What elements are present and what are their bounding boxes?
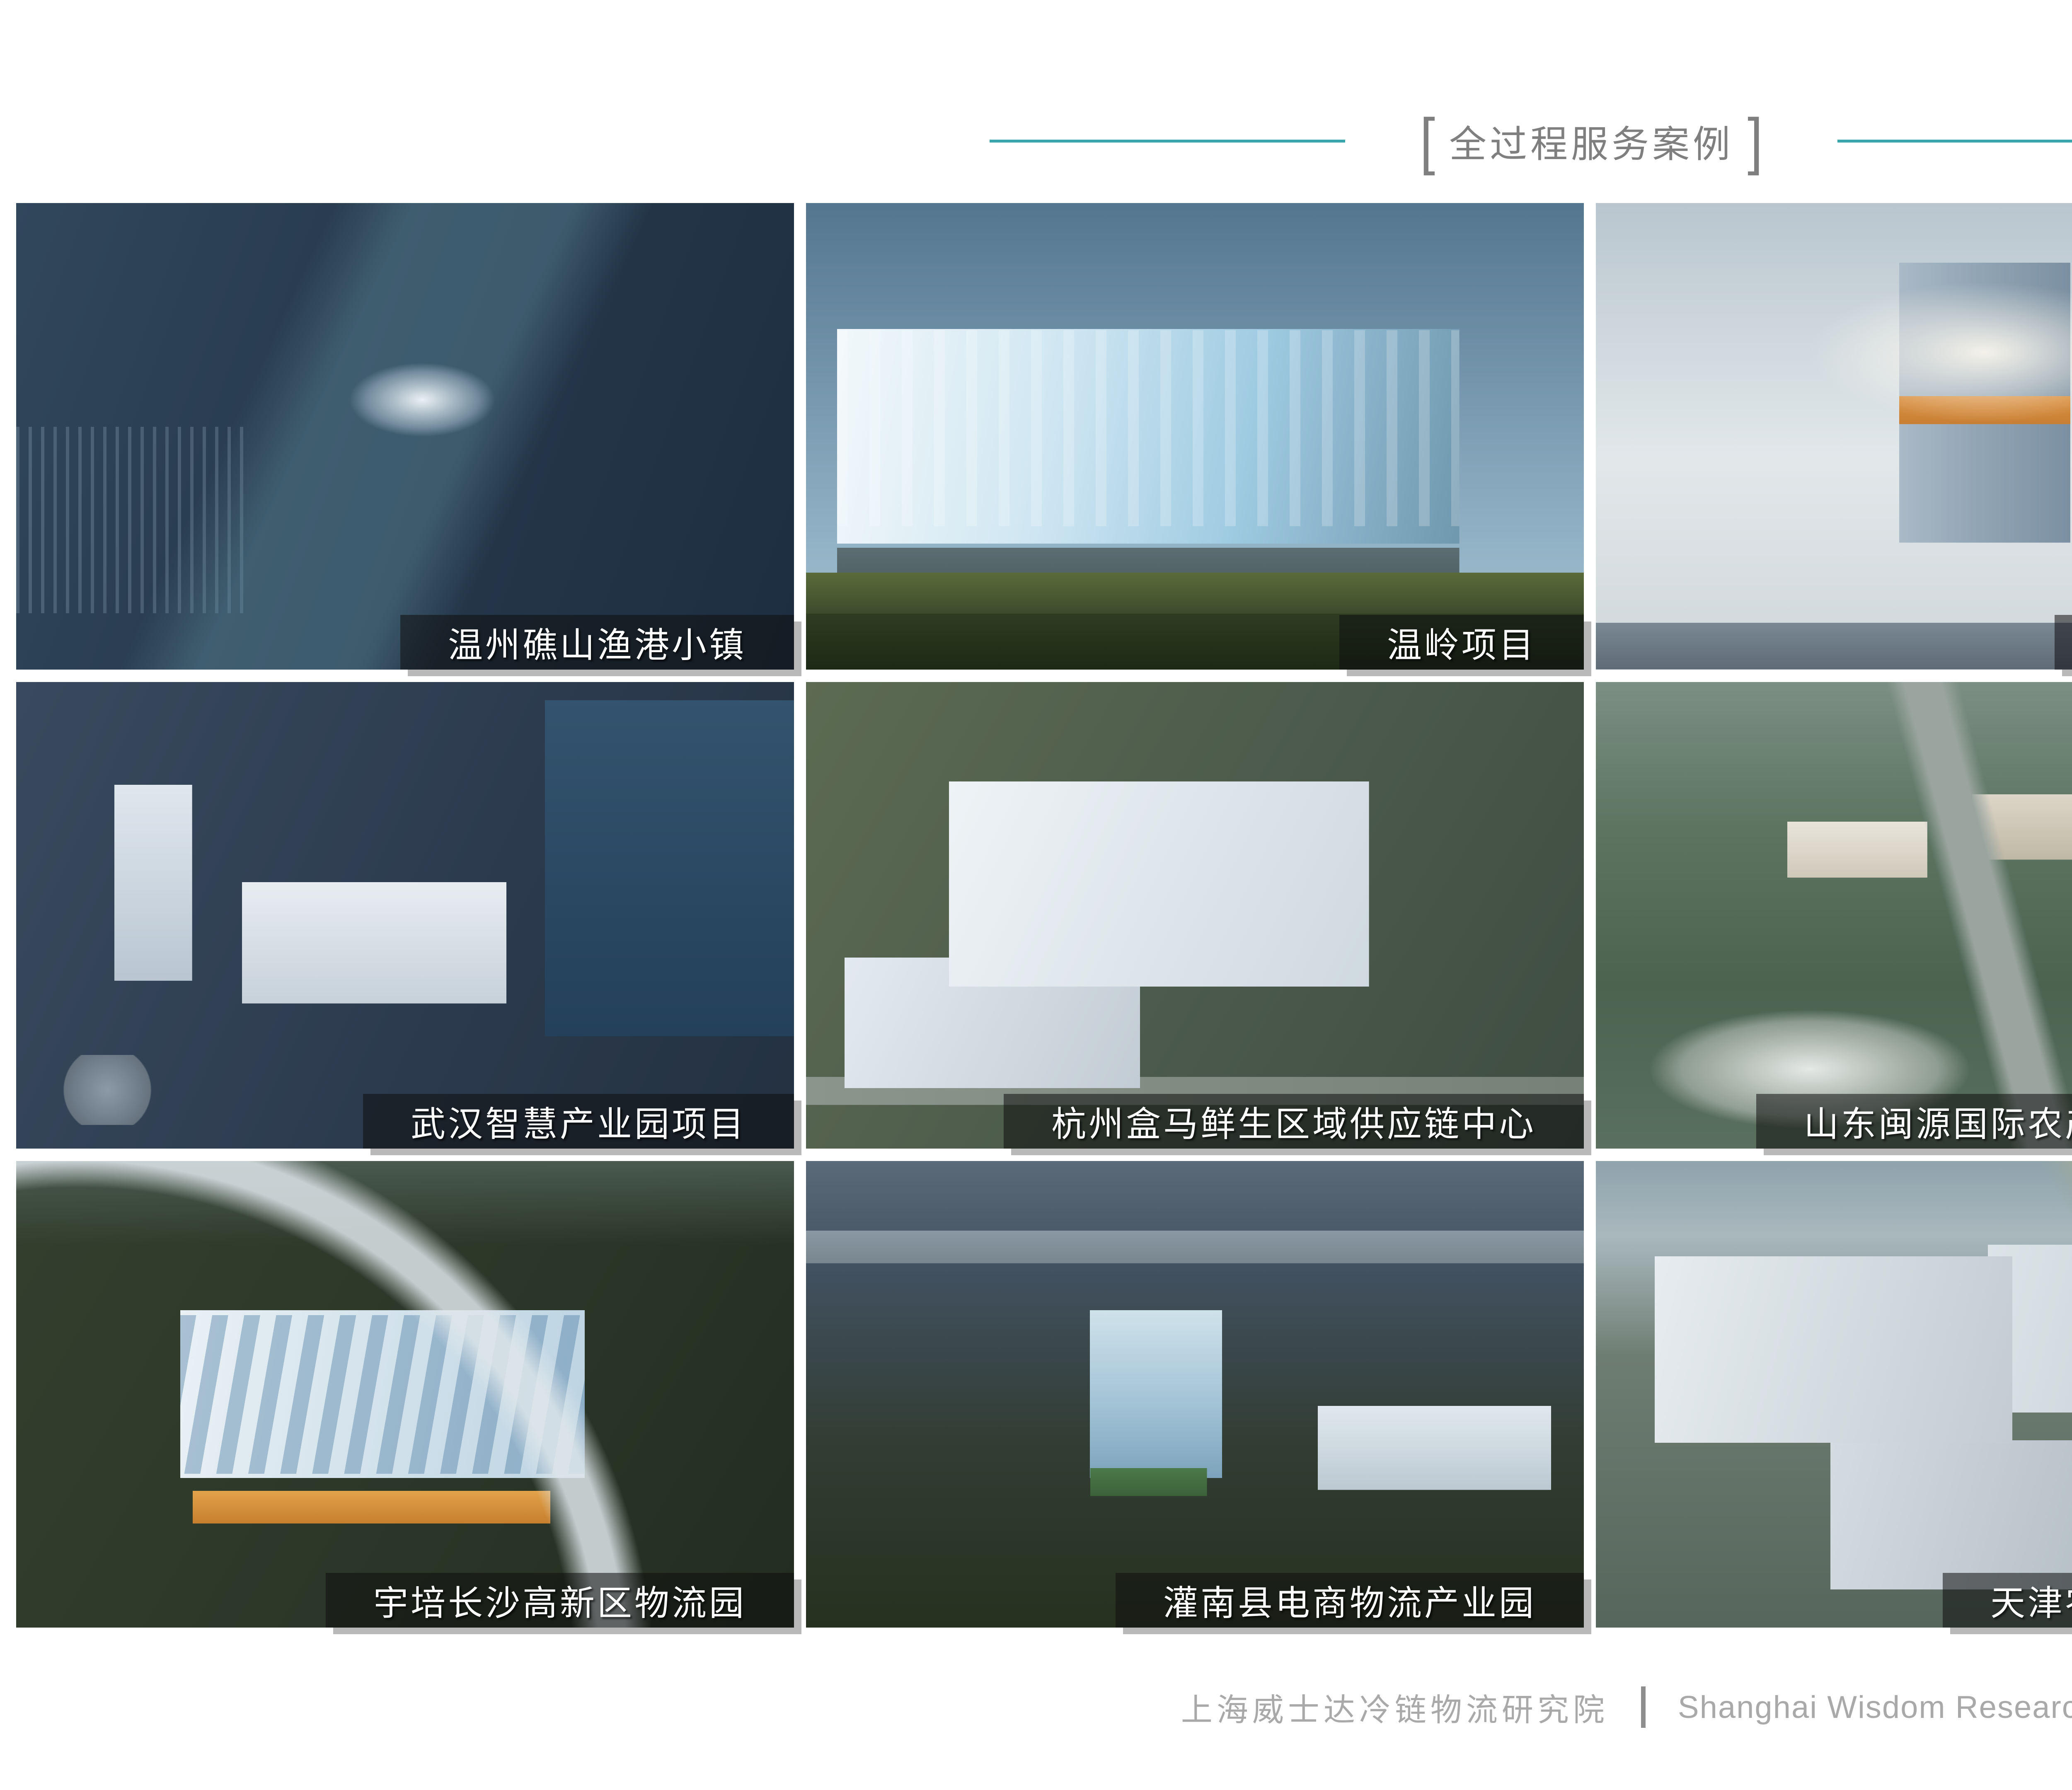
project-card-2: 温岭项目 <box>806 203 1584 670</box>
project-card-5: 武汉智慧产业园项目 <box>16 682 794 1149</box>
project-caption-label: 温岭项目 <box>1387 617 1536 668</box>
title-accent-line-right <box>1837 140 2072 143</box>
project-caption-bar: 杭州盒马鲜生区域供应链中心 <box>1004 1094 1584 1149</box>
project-caption-bar: 灌南县电商物流产业园 <box>1116 1573 1584 1628</box>
project-card-9: 宇培长沙高新区物流园 <box>16 1161 794 1628</box>
footer-organization-en: Shanghai Wisdom Research <box>1678 1689 2072 1725</box>
slide-footer: 上海威士达冷链物流研究院 Shanghai Wisdom Research <box>0 1678 2072 1736</box>
project-card-1: 温州礁山渔港小镇 <box>16 203 794 670</box>
project-caption-bar: 武汉智慧产业园项目 <box>363 1094 794 1149</box>
project-card-7: 山东闽源国际农产品物流产业园 <box>1596 682 2072 1149</box>
project-caption-label: 武汉智慧产业园项目 <box>411 1096 746 1147</box>
project-caption-label: 山东闽源国际农产品物流产业园 <box>1804 1096 2072 1147</box>
project-card-10: 灌南县电商物流产业园 <box>806 1161 1584 1628</box>
project-card-11: 天津农产品加工项目 <box>1596 1161 2072 1628</box>
title-accent-line-left <box>990 140 1345 143</box>
project-caption-bar: 宇培长沙高新区物流园 <box>326 1573 794 1628</box>
project-caption-label: 宇培长沙高新区物流园 <box>373 1575 746 1626</box>
project-caption-bar: 温州礁山渔港小镇 <box>400 615 794 670</box>
project-caption-bar: 温岭项目 <box>1339 615 1584 670</box>
footer-divider <box>1641 1686 1646 1728</box>
project-card-6: 杭州盒马鲜生区域供应链中心 <box>806 682 1584 1149</box>
project-caption-bar: 天津农产品加工项目 <box>1943 1573 2072 1628</box>
footer-organization-cn: 上海威士达冷链物流研究院 <box>1181 1684 1609 1730</box>
project-caption-label: 温州礁山渔港小镇 <box>448 617 746 668</box>
project-card-3: 上海金山项目 <box>1596 203 2072 670</box>
page-title: 全过程服务案例 <box>1449 114 1733 168</box>
project-caption-bar: 山东闽源国际农产品物流产业园 <box>1756 1094 2072 1149</box>
slide-header: [ 全过程服务案例 ] <box>0 83 2072 199</box>
project-caption-label: 杭州盒马鲜生区域供应链中心 <box>1051 1096 1536 1147</box>
slide: [ 全过程服务案例 ] 温州礁山渔港小镇温岭项目上海金山项目舟山渔港项目武汉智慧… <box>0 0 2072 1790</box>
project-caption-label: 灌南县电商物流产业园 <box>1163 1575 1536 1626</box>
project-caption-label: 天津农产品加工项目 <box>1990 1575 2072 1626</box>
project-caption-bar: 上海金山项目 <box>2055 615 2072 670</box>
title-bracket-right: ] <box>1748 109 1763 172</box>
project-grid: 温州礁山渔港小镇温岭项目上海金山项目舟山渔港项目武汉智慧产业园项目杭州盒马鲜生区… <box>16 203 2072 1628</box>
title-bracket-left: [ <box>1420 109 1435 172</box>
